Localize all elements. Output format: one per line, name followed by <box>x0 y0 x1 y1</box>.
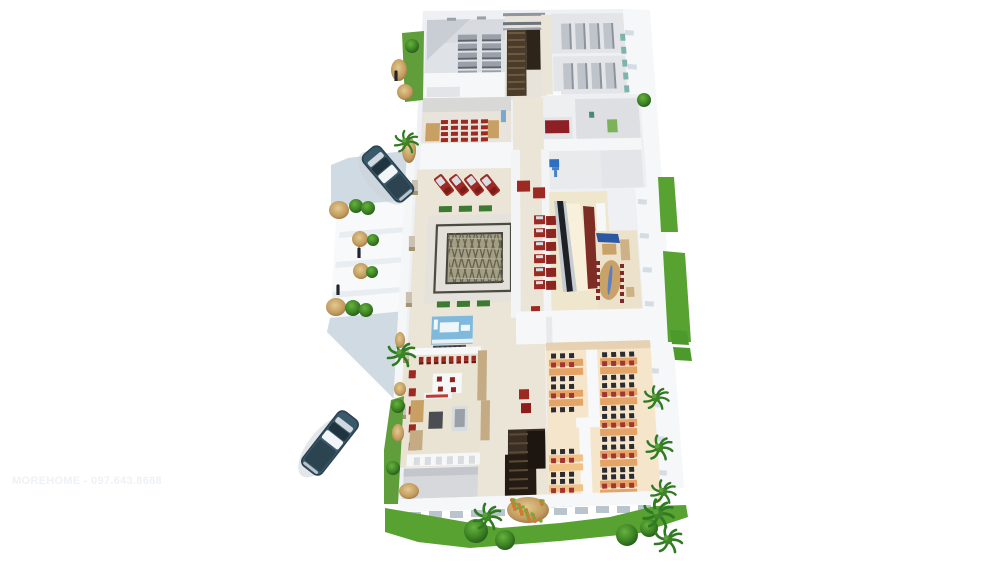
svg-text:MOREHOME - 097.643.8688: MOREHOME - 097.643.8688 <box>12 475 162 487</box>
